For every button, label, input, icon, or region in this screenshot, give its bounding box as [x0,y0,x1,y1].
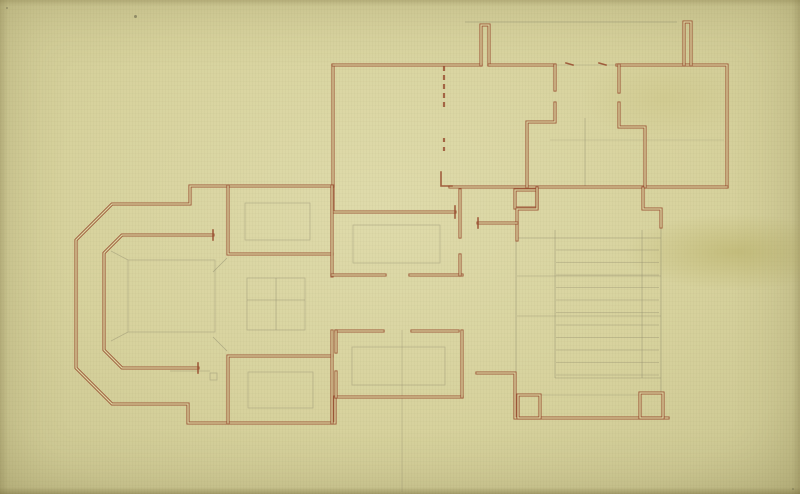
pencil-outline-rect [210,373,217,380]
pencil-outline-rect [353,225,440,263]
paper-speck [134,15,137,18]
scanned-drawing-photo [0,0,800,494]
pencil-outline-rect [128,260,215,332]
pencil-outline-rect [352,347,445,385]
pencil-outline-rect [245,203,310,240]
stair-treads [556,250,659,375]
floor-plan-drawing [0,0,800,494]
ink-partitions-layer [198,63,606,373]
pencil-outline-rect [248,372,313,408]
